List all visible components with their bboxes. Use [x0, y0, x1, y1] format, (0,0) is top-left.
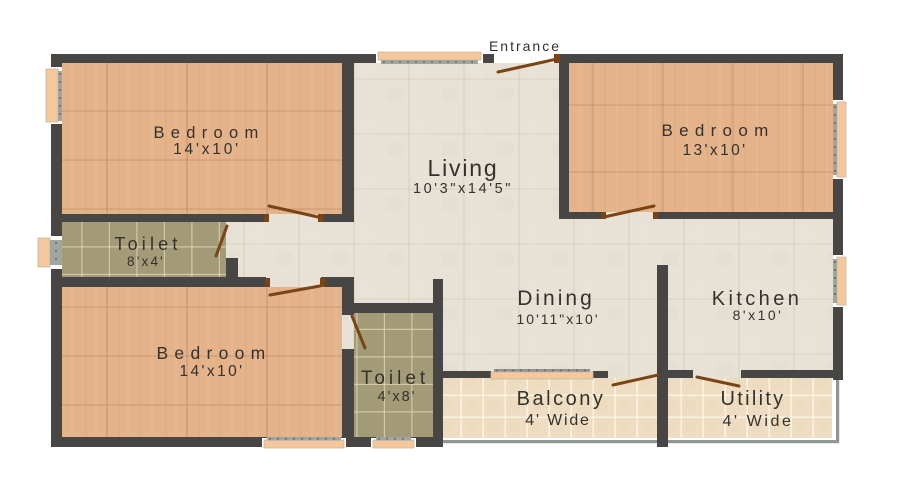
svg-text:Toilet: Toilet: [361, 368, 429, 389]
svg-text:Utility: Utility: [721, 388, 786, 410]
svg-text:Dining: Dining: [517, 287, 595, 310]
svg-text:Entrance: Entrance: [489, 38, 561, 54]
svg-text:Living: Living: [428, 155, 499, 181]
svg-text:8'x10': 8'x10': [733, 307, 784, 323]
svg-text:13'x10': 13'x10': [683, 142, 748, 159]
svg-text:Bedroom: Bedroom: [153, 124, 264, 142]
svg-text:14'x10': 14'x10': [173, 141, 241, 158]
svg-text:Bedroom: Bedroom: [156, 343, 271, 363]
svg-text:14'x10': 14'x10': [180, 363, 245, 380]
svg-text:4'x8': 4'x8': [378, 389, 417, 405]
svg-text:8'x4': 8'x4': [127, 254, 165, 269]
svg-text:10'11"x10': 10'11"x10': [517, 311, 600, 327]
svg-text:Bedroom: Bedroom: [661, 121, 774, 140]
svg-text:4' Wide: 4' Wide: [722, 413, 793, 430]
svg-text:4' Wide: 4' Wide: [525, 412, 590, 429]
svg-text:10'3"x14'5": 10'3"x14'5": [413, 181, 513, 197]
svg-text:Toilet: Toilet: [114, 234, 181, 254]
svg-text:Balcony: Balcony: [517, 388, 606, 410]
